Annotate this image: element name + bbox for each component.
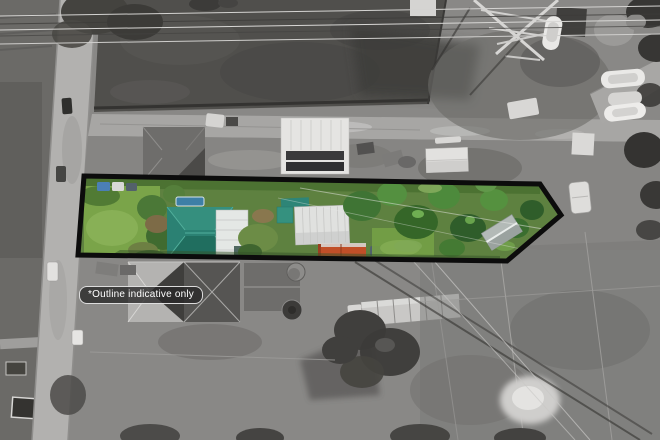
lawn-highlight [86,210,138,246]
white-car [72,330,83,345]
ground-object [398,156,416,168]
parked-car [56,166,66,182]
parked-car [61,98,72,115]
dark-car [226,117,238,126]
white-shed-solar [281,118,349,174]
scene-canvas [0,0,660,440]
dirt-patch [252,209,274,223]
dark-car [356,142,374,155]
white-car [112,182,124,191]
white-structure [410,0,436,16]
tank-center [288,306,296,314]
sand-patch-bright [512,386,544,410]
solar-panel-row [286,151,344,160]
property-highlight [70,170,570,270]
blue-car [97,182,110,191]
caravan [568,181,591,214]
aerial-photo: *Outline indicative only [0,0,660,440]
neighbour-house-north [143,127,205,181]
white-structure [571,132,594,155]
outline-disclaimer-badge: *Outline indicative only [79,286,203,304]
white-car [47,262,58,281]
tank-shadow [288,268,300,280]
white-van [205,113,224,128]
solar-panel-row [286,162,344,171]
white-shed-east [426,147,469,172]
ground-vehicle [120,265,136,275]
roadside-tree [50,375,86,415]
outline-disclaimer-label: *Outline indicative only [88,289,194,300]
pool [176,197,204,206]
gray-car [126,183,137,191]
